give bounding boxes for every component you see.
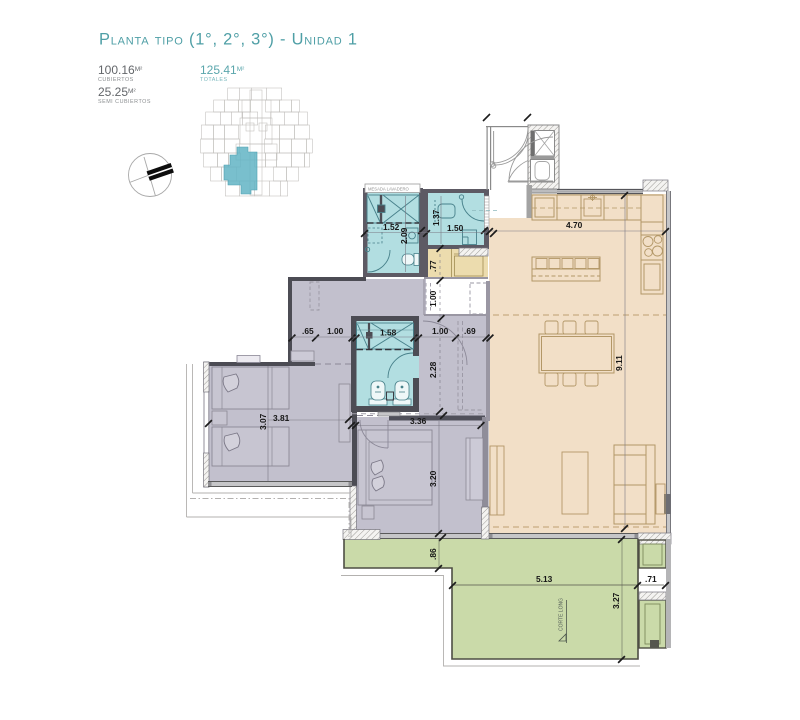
svg-text:1.50: 1.50 <box>447 223 464 233</box>
svg-text:.71: .71 <box>645 574 657 584</box>
svg-text:SEMI CUBIERTOS: SEMI CUBIERTOS <box>98 99 151 105</box>
svg-text:3.27: 3.27 <box>611 592 621 609</box>
svg-text:1.58: 1.58 <box>380 328 397 338</box>
svg-text:CORTE LONG: CORTE LONG <box>559 598 565 631</box>
svg-text:2.09: 2.09 <box>399 227 409 244</box>
svg-text:.86: .86 <box>428 548 438 560</box>
svg-text:.65: .65 <box>302 326 314 336</box>
svg-text:1.00: 1.00 <box>432 326 449 336</box>
svg-text:5.13: 5.13 <box>536 574 553 584</box>
svg-text:3.36: 3.36 <box>410 416 427 426</box>
svg-text:1.00: 1.00 <box>327 326 344 336</box>
svg-text:.69: .69 <box>464 326 476 336</box>
svg-text:.77: .77 <box>428 260 438 272</box>
svg-text:3.20: 3.20 <box>428 470 438 487</box>
svg-text:Planta tipo (1°, 2°, 3°) - Uni: Planta tipo (1°, 2°, 3°) - Unidad 1 <box>99 31 358 49</box>
svg-text:3.81: 3.81 <box>273 413 290 423</box>
svg-text:1.37: 1.37 <box>431 209 441 226</box>
svg-text:2.28: 2.28 <box>428 361 438 378</box>
svg-text:TOTALES: TOTALES <box>200 77 228 83</box>
svg-text:3.07: 3.07 <box>258 413 268 430</box>
svg-text:9.11: 9.11 <box>614 355 624 371</box>
svg-text:1.00: 1.00 <box>428 290 438 307</box>
svg-text:MESADA LAVADERO: MESADA LAVADERO <box>368 186 410 191</box>
svg-text:CUBIERTOS: CUBIERTOS <box>98 77 134 83</box>
svg-text:4.70: 4.70 <box>566 220 583 230</box>
svg-text:1.52: 1.52 <box>383 222 400 232</box>
